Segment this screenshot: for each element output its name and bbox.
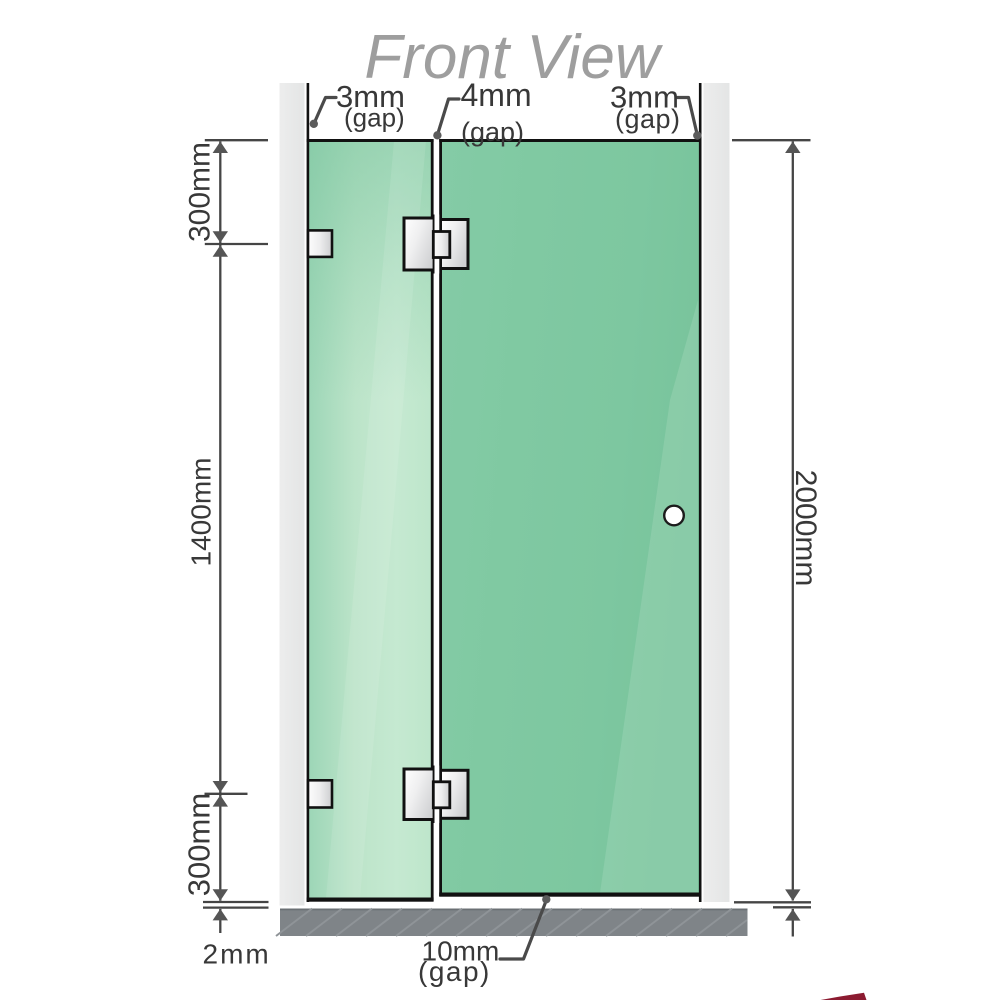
svg-text:(gap): (gap) bbox=[615, 104, 681, 134]
svg-text:(gap): (gap) bbox=[418, 956, 491, 987]
svg-text:1400mm: 1400mm bbox=[186, 458, 217, 567]
svg-text:(gap): (gap) bbox=[461, 117, 524, 147]
svg-text:300mm: 300mm bbox=[182, 793, 217, 896]
svg-text:(gap): (gap) bbox=[344, 103, 405, 133]
svg-text:2mm: 2mm bbox=[203, 939, 271, 970]
svg-text:300mm: 300mm bbox=[184, 142, 217, 242]
svg-text:4mm: 4mm bbox=[461, 77, 532, 113]
svg-text:2000mm: 2000mm bbox=[789, 470, 822, 587]
